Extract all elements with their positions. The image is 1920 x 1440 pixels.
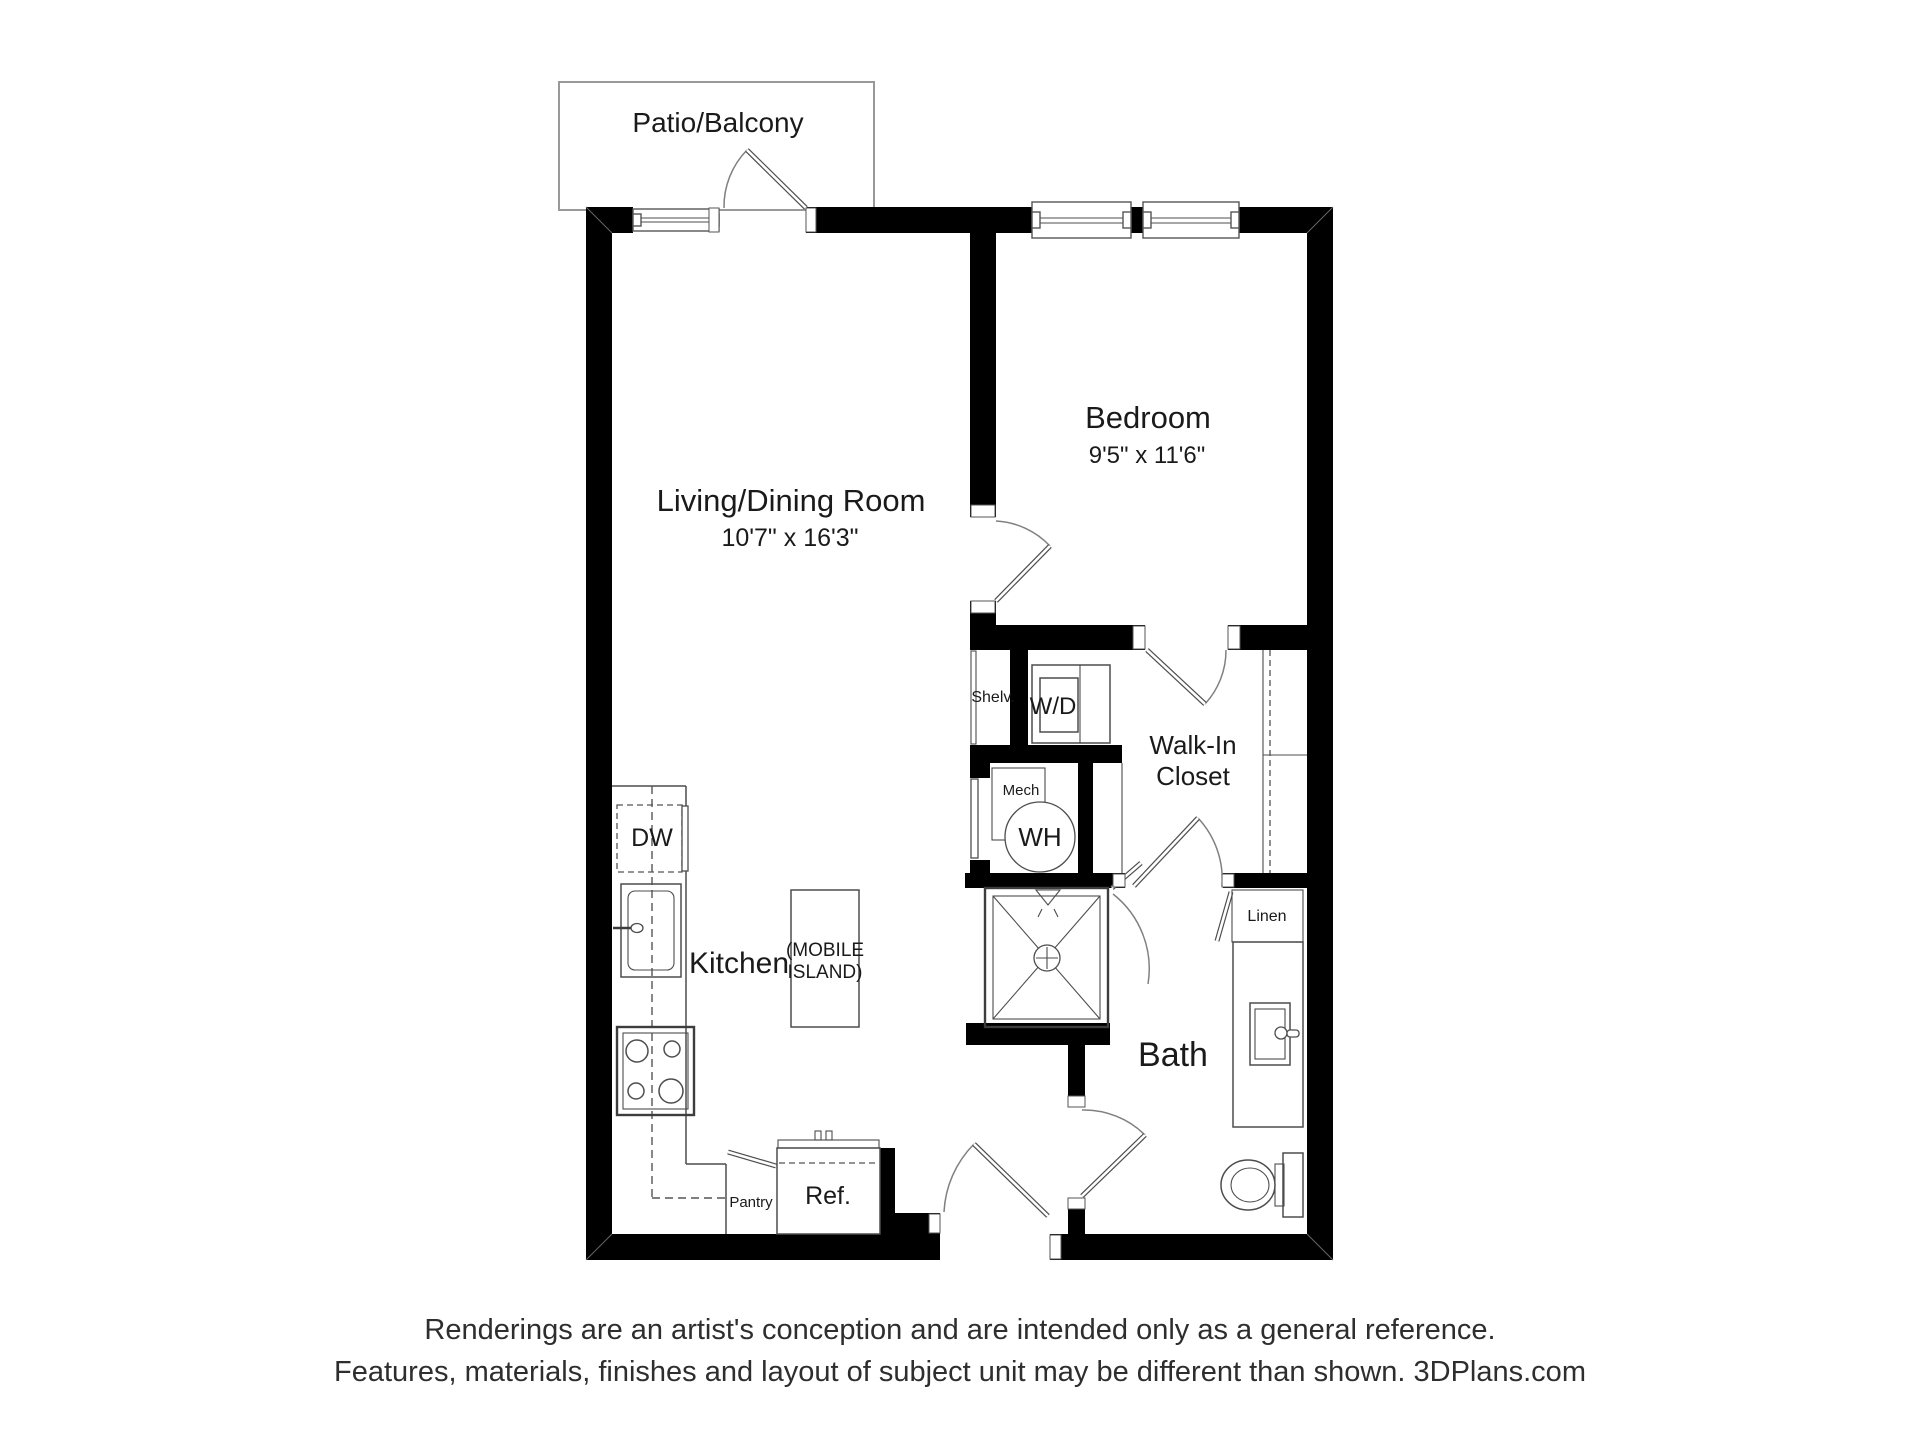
refrigerator: Ref. (777, 1131, 880, 1234)
pantry-label: Pantry (729, 1194, 773, 1211)
mech-closet: Mech WH (992, 768, 1075, 872)
washer-dryer-label: W/D (1030, 693, 1077, 720)
island-label-line2: ISLAND) (788, 962, 863, 983)
walk-in-closet: Walk-In Closet (1122, 650, 1307, 873)
disclaimer-line2: Features, materials, finishes and layout… (334, 1356, 1586, 1388)
wall-bedroom-living (970, 233, 996, 517)
shelving-label: Shelv. (971, 689, 1014, 706)
walk-in-closet-label-line1: Walk-In (1149, 730, 1236, 760)
bedroom-door (996, 521, 1050, 601)
wall-bath-top-a (965, 873, 1125, 888)
entry-door (944, 1144, 1048, 1216)
bedroom-window-2 (1143, 202, 1239, 238)
wall-left (586, 207, 612, 1260)
pantry-door (728, 1152, 776, 1166)
floor-plan-page: Patio/Balcony (0, 0, 1920, 1440)
linen-closet: Linen (1232, 890, 1303, 942)
wall-top-a (586, 207, 633, 233)
refrigerator-label: Ref. (805, 1182, 851, 1210)
bath-label: Bath (1138, 1036, 1208, 1074)
kitchen-counter (612, 786, 726, 1234)
burner-4 (659, 1079, 683, 1103)
wall-mech-left-top (970, 762, 990, 778)
kitchen-sink (613, 884, 681, 977)
burner-3 (628, 1083, 644, 1099)
wall-bedroom-bottom-a (970, 625, 1145, 650)
floor-plan-canvas: Patio/Balcony (0, 0, 1920, 1440)
patio: Patio/Balcony (559, 82, 874, 210)
living-room-dimensions: 10'7" x 16'3" (721, 524, 858, 552)
water-heater-label: WH (1018, 822, 1061, 852)
toilet-bowl (1221, 1160, 1275, 1210)
vanity-faucet (1275, 1027, 1287, 1039)
washer-dryer: W/D (1030, 665, 1110, 743)
living-window (633, 209, 719, 231)
patio-door (724, 150, 806, 208)
mech-closet-door (971, 779, 978, 858)
bedroom-dimensions: 9'5" x 11'6" (1089, 442, 1206, 469)
toilet-tank (1283, 1153, 1303, 1217)
walk-in-closet-door (1147, 650, 1226, 704)
mech-label: Mech (1003, 782, 1040, 799)
bath-hall-door (1082, 1110, 1145, 1196)
disclaimer-line1: Renderings are an artist's conception an… (424, 1314, 1495, 1346)
stove (617, 1027, 694, 1115)
linen-label: Linen (1247, 908, 1286, 925)
wall-right (1307, 207, 1333, 1260)
wall-mech-right (1078, 763, 1093, 873)
wall-bottom-b (1050, 1234, 1333, 1260)
shower (985, 888, 1108, 1027)
patio-outline (559, 82, 874, 210)
wall-ref-stub (880, 1148, 895, 1234)
burner-1 (626, 1040, 648, 1062)
bath: Linen Bath (1138, 890, 1303, 1217)
interior-walls (965, 233, 1307, 1107)
kitchen-label: Kitchen (689, 947, 789, 980)
dishwasher-label: DW (631, 824, 673, 852)
mobile-island: (MOBILE ISLAND) (786, 890, 864, 1027)
bedroom-window-1 (1032, 202, 1131, 238)
footer: Renderings are an artist's conception an… (334, 1314, 1586, 1388)
shower-head (1036, 890, 1060, 905)
room-labels: Living/Dining Room 10'7" x 16'3" Bedroom… (657, 400, 1211, 552)
wall-bath-top-b (1223, 873, 1307, 888)
walk-in-closet-label-line2: Closet (1156, 761, 1230, 791)
toilet (1221, 1153, 1303, 1217)
vanity (1233, 942, 1303, 1127)
linen-door (1217, 892, 1231, 941)
closet-bath-door (1112, 818, 1222, 984)
wall-top-b (806, 207, 1035, 233)
island-label-line1: (MOBILE (786, 940, 864, 961)
living-room-label: Living/Dining Room (657, 483, 926, 518)
bedroom-label: Bedroom (1085, 400, 1211, 435)
kitchen: DW (MOBILE ISLAND) Ref. (612, 786, 880, 1234)
patio-label: Patio/Balcony (632, 107, 803, 138)
burner-2 (664, 1041, 680, 1057)
wall-bottom-a (586, 1234, 940, 1260)
wall-utility-mid (970, 745, 1122, 763)
